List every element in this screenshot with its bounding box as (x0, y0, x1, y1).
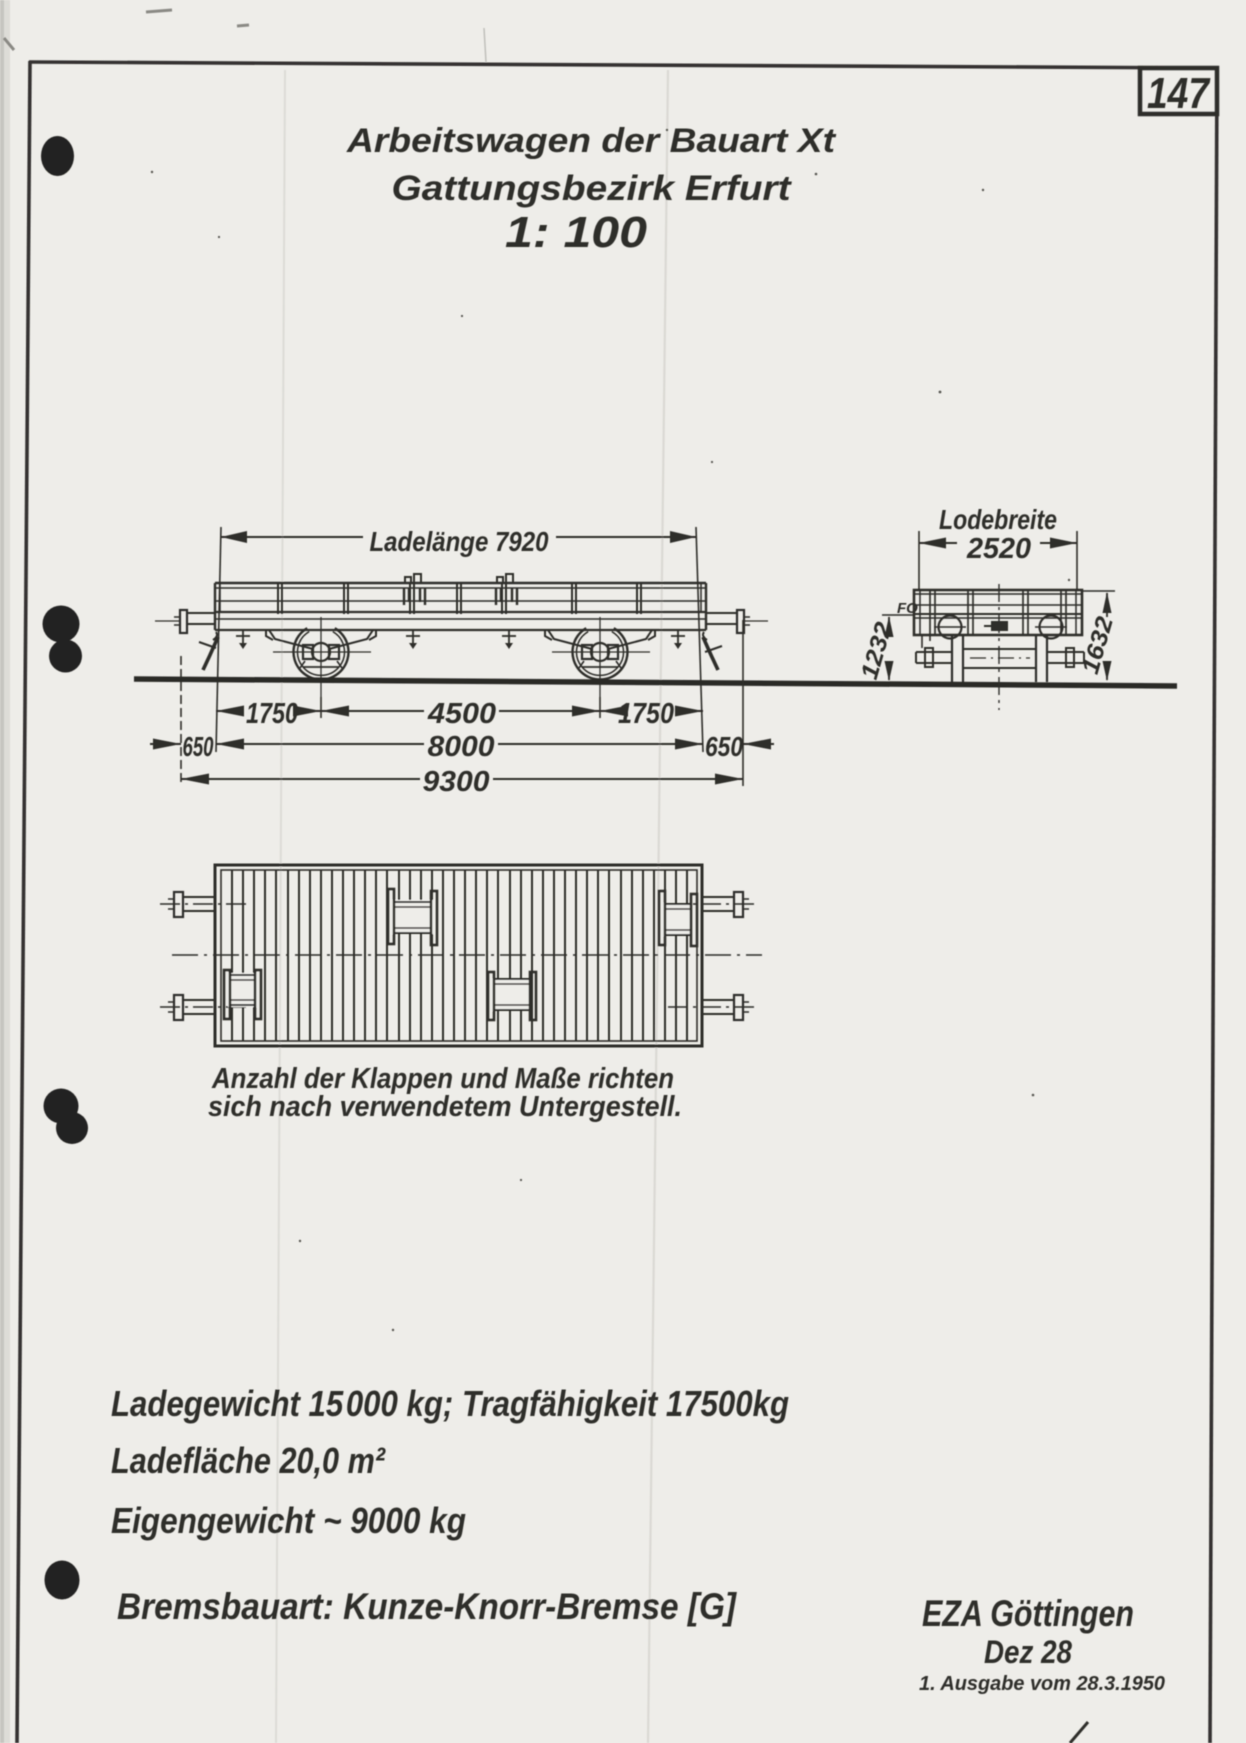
svg-text:147: 147 (1147, 69, 1211, 118)
svg-text:8000: 8000 (428, 731, 495, 763)
svg-text:Dez 28: Dez 28 (984, 1634, 1072, 1670)
svg-text:2520: 2520 (966, 533, 1031, 565)
svg-text:9300: 9300 (423, 766, 490, 798)
svg-text:1750: 1750 (618, 698, 674, 730)
svg-text:650: 650 (183, 731, 214, 762)
svg-text:1. Ausgabe vom 28.3.1950: 1. Ausgabe vom 28.3.1950 (919, 1673, 1165, 1695)
svg-text:1750: 1750 (246, 698, 298, 730)
svg-text:Bremsbauart: Kunze-Knorr-Brems: Bremsbauart: Kunze-Knorr-Bremse [G] (117, 1586, 738, 1627)
svg-text:Ladefläche 20,0 m²: Ladefläche 20,0 m² (111, 1440, 386, 1481)
svg-text:Ladegewicht 15 000 kg; Tragfäh: Ladegewicht 15 000 kg; Tragfähigkeit 175… (111, 1383, 789, 1424)
svg-text:EZA Göttingen: EZA Göttingen (922, 1593, 1134, 1634)
svg-text:Eigengewicht ~ 9000 kg: Eigengewicht ~ 9000 kg (111, 1500, 466, 1541)
svg-text:Gattungsbezirk Erfurt: Gattungsbezirk Erfurt (392, 169, 792, 208)
svg-text:Lodebreite: Lodebreite (939, 504, 1057, 535)
svg-text:4500: 4500 (427, 698, 496, 730)
svg-text:Ladelänge 7920: Ladelänge 7920 (370, 526, 549, 557)
svg-text:650: 650 (705, 731, 743, 762)
svg-text:sich nach verwendetem Unterges: sich nach verwendetem Untergestell. (208, 1091, 682, 1123)
svg-text:1: 100: 1: 100 (505, 208, 648, 257)
svg-text:Arbeitswagen der Bauart Xt: Arbeitswagen der Bauart Xt (346, 122, 837, 160)
